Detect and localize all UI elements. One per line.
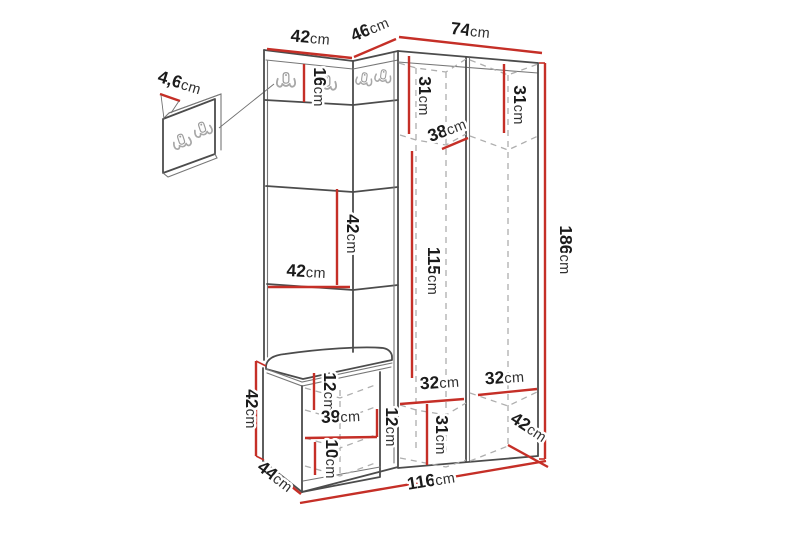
dimension-diagram: 4,6cm 42cm 46cm 74cm 16cm 31cm 31cm 38cm… [0, 0, 800, 533]
hook-row-bottom-edge [265, 100, 353, 105]
dim-bench-height-label: 42cm [242, 389, 262, 429]
dim-bench-interior-width-line [305, 437, 377, 438]
left-panel-section [264, 50, 353, 360]
top-edge [353, 51, 398, 61]
dim-total-width-label: 116cm [406, 466, 457, 493]
extension-line [161, 95, 164, 119]
dim-right-col-top-height-label: 31cm [510, 85, 530, 125]
panel-bottom-edge [163, 154, 217, 177]
top-inner-edge [398, 62, 538, 73]
dim-bench-interior-width-label: 39cm [320, 405, 361, 427]
dim-left-top-width-label: 42cm [290, 25, 331, 48]
dim-bench-depth-label: 44cm [254, 456, 298, 496]
dim-tick [256, 361, 266, 366]
dim-hook-panel-height-label: 16cm [310, 67, 330, 107]
dim-left-col-top-height-label: 31cm [415, 76, 435, 116]
dim-interior-height-label: 115cm [424, 247, 444, 295]
double-coat-hook-icon [375, 69, 392, 83]
dim-corner-top-width-label: 46cm [348, 12, 392, 46]
top-edge [398, 51, 538, 63]
dim-panel-thickness-label: 4,6cm [156, 66, 204, 98]
dim-left-col-width-label: 32cm [419, 371, 460, 394]
shelf-edge [353, 285, 398, 290]
dim-total-height-label: 186cm [556, 225, 576, 274]
dim-left-col-width-line [400, 399, 464, 404]
dim-panel-thickness-line [160, 94, 180, 101]
panel-thickness-edge [163, 94, 221, 150]
shelf-edge [266, 186, 353, 192]
dim-bottom-compartment-height-label: 31cm [432, 415, 452, 455]
leader-line [219, 84, 274, 128]
double-coat-hook-icon [171, 132, 192, 150]
wall-hook-panel [160, 84, 274, 177]
top-inner-edge [353, 60, 398, 69]
dim-middle-section-width-label: 42cm [286, 260, 327, 282]
hook-row-bottom-edge [353, 100, 398, 105]
double-coat-hook-icon [192, 120, 213, 138]
dim-right-col-width-label: 32cm [484, 366, 525, 389]
dim-bench-bottom-height-label: 10cm [322, 439, 342, 479]
hidden-shelf-edge [305, 384, 378, 398]
dim-right-top-width-label: 74cm [450, 18, 491, 42]
hidden-shelf-edge [470, 136, 538, 150]
corner-face [353, 51, 398, 466]
double-coat-hook-icon [356, 72, 373, 86]
double-coat-hook-icon [277, 73, 295, 87]
dim-left-top-width-line [267, 49, 352, 58]
top-inner-edge [266, 60, 353, 69]
shelf-edge [353, 187, 398, 192]
hidden-shelf-edge [400, 403, 466, 415]
dim-middle-section-height-label: 42cm [343, 214, 363, 254]
dim-bench-shelf-spacing-label: 12cm [382, 407, 402, 447]
